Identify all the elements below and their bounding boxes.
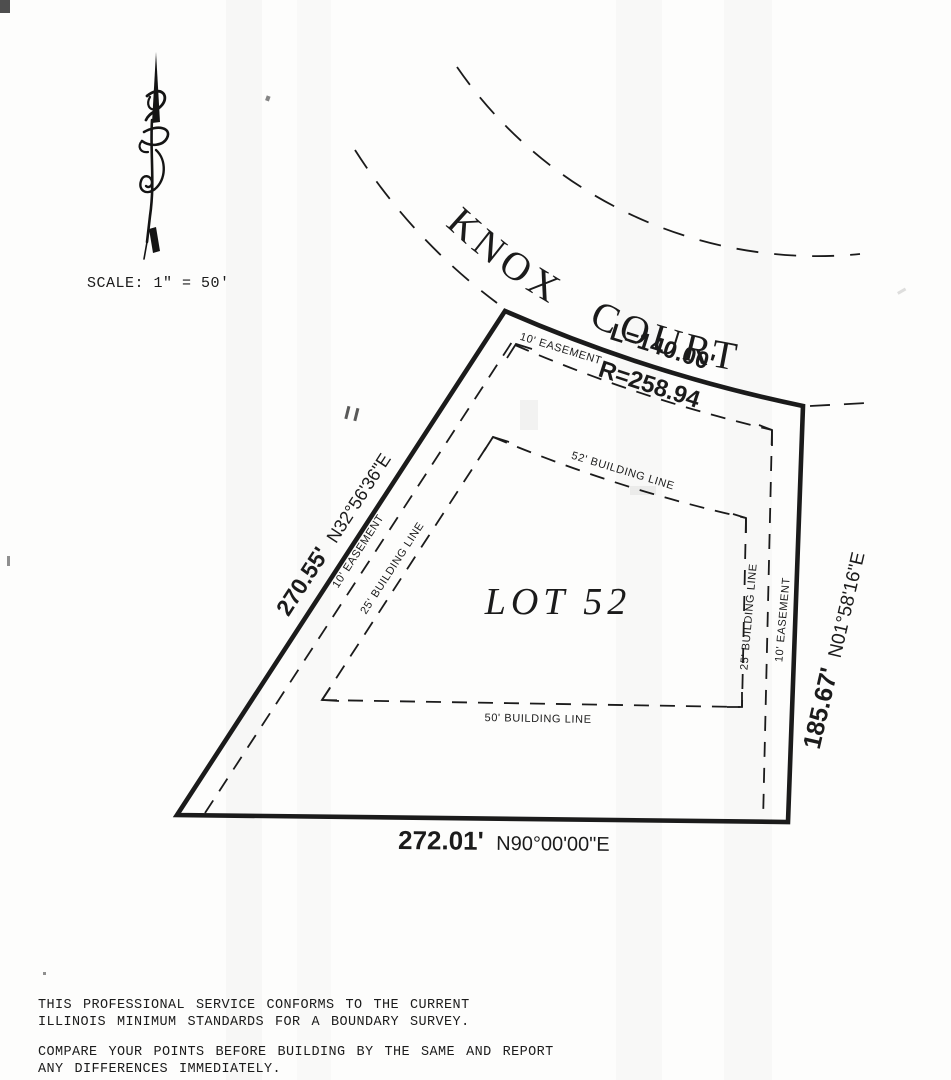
right-easement-line bbox=[763, 430, 772, 822]
note-compare-line1: COMPARE YOUR POINTS BEFORE BUILDING BY T… bbox=[38, 1045, 554, 1060]
note-standards-line2: ILLINOIS MINIMUM STANDARDS FOR A BOUNDAR… bbox=[38, 1015, 470, 1030]
rear-building-line-label: 50' BUILDING LINE bbox=[484, 712, 591, 726]
lot-boundary bbox=[177, 311, 803, 822]
left-easement-line bbox=[205, 342, 512, 813]
left-distance: 270.55' bbox=[271, 542, 334, 620]
right-distance: 185.67' bbox=[798, 665, 844, 752]
north-arrow-icon bbox=[140, 52, 168, 259]
rear-distance: 272.01' bbox=[398, 825, 484, 856]
rear-dimension-label: 272.01' N90°00'00"E bbox=[398, 825, 610, 857]
road-edge-extension bbox=[810, 403, 867, 406]
right-easement-label: 10' EASEMENT bbox=[773, 577, 792, 663]
lot-label: LOT 52 bbox=[484, 581, 632, 623]
scale-label: SCALE: 1" = 50' bbox=[87, 275, 230, 292]
survey-notes: THIS PROFESSIONAL SERVICE CONFORMS TO TH… bbox=[38, 998, 554, 1077]
plat-drawing: KNOX COURT L=140.00' R=258.94 bbox=[0, 0, 951, 1080]
survey-plat-page: KNOX COURT L=140.00' R=258.94 bbox=[0, 0, 951, 1080]
note-standards-line1: THIS PROFESSIONAL SERVICE CONFORMS TO TH… bbox=[38, 998, 470, 1013]
road-edge-arc-outer bbox=[457, 67, 860, 256]
right-dimension-label: 185.67' N01°58'16"E bbox=[798, 549, 871, 752]
rear-building-line bbox=[322, 700, 740, 707]
front-building-line-label: 52' BUILDING LINE bbox=[570, 450, 676, 493]
rear-bearing: N90°00'00"E bbox=[496, 833, 610, 856]
right-building-line-label: 25' BUILDING LINE bbox=[738, 563, 759, 671]
front-building-line bbox=[493, 437, 746, 518]
right-bearing: N01°58'16"E bbox=[825, 550, 870, 660]
corner-ticks bbox=[322, 344, 772, 707]
note-compare-line2: ANY DIFFERENCES IMMEDIATELY. bbox=[38, 1062, 281, 1077]
